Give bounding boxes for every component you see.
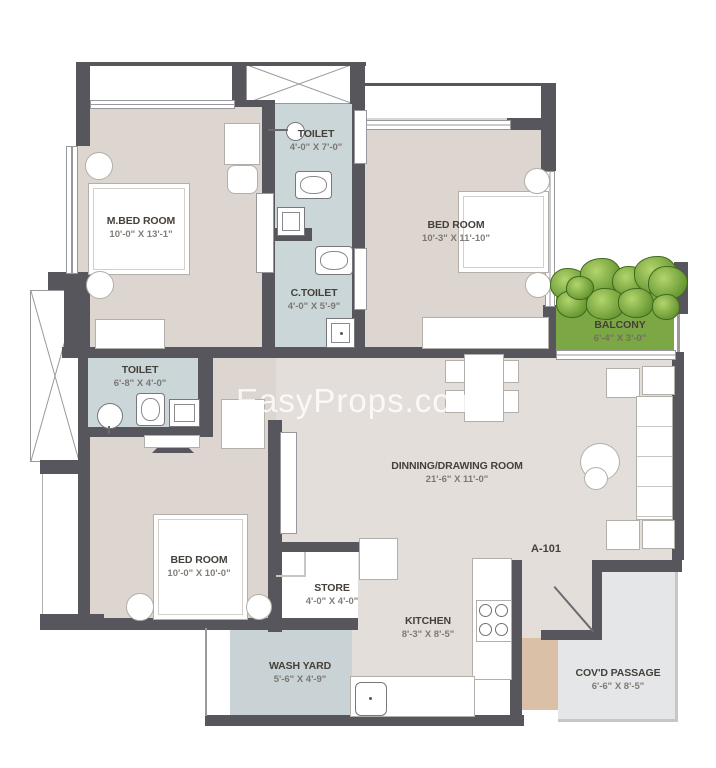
wall: [592, 560, 602, 640]
shower-arm: [268, 129, 288, 131]
window: [66, 146, 78, 274]
wall: [541, 83, 556, 171]
nightstand: [86, 271, 114, 299]
room-label-kitchen: KITCHEN 8'-3" X 8'-5": [402, 615, 455, 641]
wc-icon: [295, 171, 332, 199]
wall: [78, 62, 366, 66]
wall: [365, 83, 543, 86]
balcony-rail-edge: [677, 314, 680, 352]
store-step: [276, 575, 306, 577]
nightstand: [525, 272, 551, 298]
wall: [507, 118, 543, 130]
dresser: [224, 123, 260, 165]
wall: [76, 62, 90, 146]
side-ledge: [42, 474, 81, 614]
room-label-m-bed-room: M.BED ROOM 10'-0" X 13'-1": [107, 215, 175, 241]
door-bedroom-left: [280, 432, 297, 534]
room-label-wash-yard: WASH YARD 5'-6" X 4'-9": [269, 660, 331, 686]
side-table: [584, 467, 608, 490]
wall: [233, 100, 262, 107]
pedestal-basin-icon: [97, 403, 123, 429]
wall: [198, 352, 213, 437]
ottoman: [642, 520, 675, 549]
door-c-toilet: [354, 248, 367, 310]
passage-edge-right: [675, 572, 678, 722]
room-label-balcony: BALCONY 6'-4" X 3'-0": [594, 319, 647, 345]
wall: [40, 460, 80, 474]
sink-icon: [355, 682, 387, 716]
wall: [592, 560, 682, 572]
nightstand: [126, 593, 154, 621]
door-m-bedroom: [256, 193, 274, 273]
room-label-c-toilet: C.TOILET 4'-0" X 5'-9": [288, 287, 341, 313]
entry-floor: [510, 560, 592, 638]
passage-floor-upper: [600, 572, 675, 638]
refrigerator: [359, 538, 398, 580]
tv-unit: [144, 435, 200, 448]
nightstand: [246, 594, 272, 620]
room-label-toilet-left: TOILET 6'-8" X 4'-0": [114, 364, 167, 390]
store-step: [304, 552, 306, 577]
wall: [232, 62, 246, 104]
wall: [78, 358, 88, 428]
sofa: [636, 396, 673, 520]
stool: [227, 165, 258, 194]
plant-icon: [618, 288, 654, 318]
window: [90, 100, 235, 109]
washbasin-icon: [169, 399, 200, 427]
room-label-store: STORE 4'-0" X 4'-0": [306, 582, 359, 608]
door-bedroom-right: [354, 110, 367, 164]
balcony-rail: [556, 350, 676, 360]
wall: [350, 62, 365, 104]
wc-icon: [136, 393, 165, 426]
bench: [95, 319, 165, 349]
room-label-toilet-top: TOILET 4'-0" X 7'-0": [290, 128, 343, 154]
watermark: EasyProps.com: [236, 382, 480, 420]
room-label-bed-room-right: BED ROOM 10'-3" X 11'-10": [422, 219, 490, 245]
stove-icon: [476, 600, 512, 642]
armchair: [606, 368, 640, 398]
wash-yard-edge: [205, 628, 207, 716]
plant-icon: [566, 276, 594, 300]
room-label-dining-drawing: DINNING/DRAWING ROOM 21'-6" X 11'-0": [391, 460, 523, 486]
wardrobe: [422, 317, 549, 349]
wall: [78, 437, 90, 614]
shaft-tan-block: [522, 638, 558, 710]
plant-icon: [652, 294, 680, 320]
unit-number: A-101: [531, 543, 561, 555]
washbasin-icon: [277, 207, 305, 236]
pedestal-stem: [108, 426, 110, 434]
window: [365, 120, 511, 130]
armchair: [606, 520, 640, 550]
wc-icon: [315, 246, 353, 275]
passage-edge-bottom: [558, 719, 678, 722]
wall: [268, 542, 360, 552]
duct-cross-lines: [247, 65, 351, 103]
room-label-bed-room-left: BED ROOM 10'-0" X 10'-0": [167, 554, 230, 580]
wall: [48, 272, 78, 290]
nightstand: [524, 168, 550, 194]
ottoman: [642, 366, 675, 395]
room-label-covd-passage: COV'D PASSAGE 6'-6" X 8'-5": [575, 667, 660, 693]
nightstand: [85, 152, 113, 180]
duct-cross-top: [246, 64, 352, 104]
washbasin-icon: [326, 318, 355, 348]
floor-plan: M.BED ROOM 10'-0" X 13'-1" TOILET 4'-0" …: [0, 0, 716, 768]
